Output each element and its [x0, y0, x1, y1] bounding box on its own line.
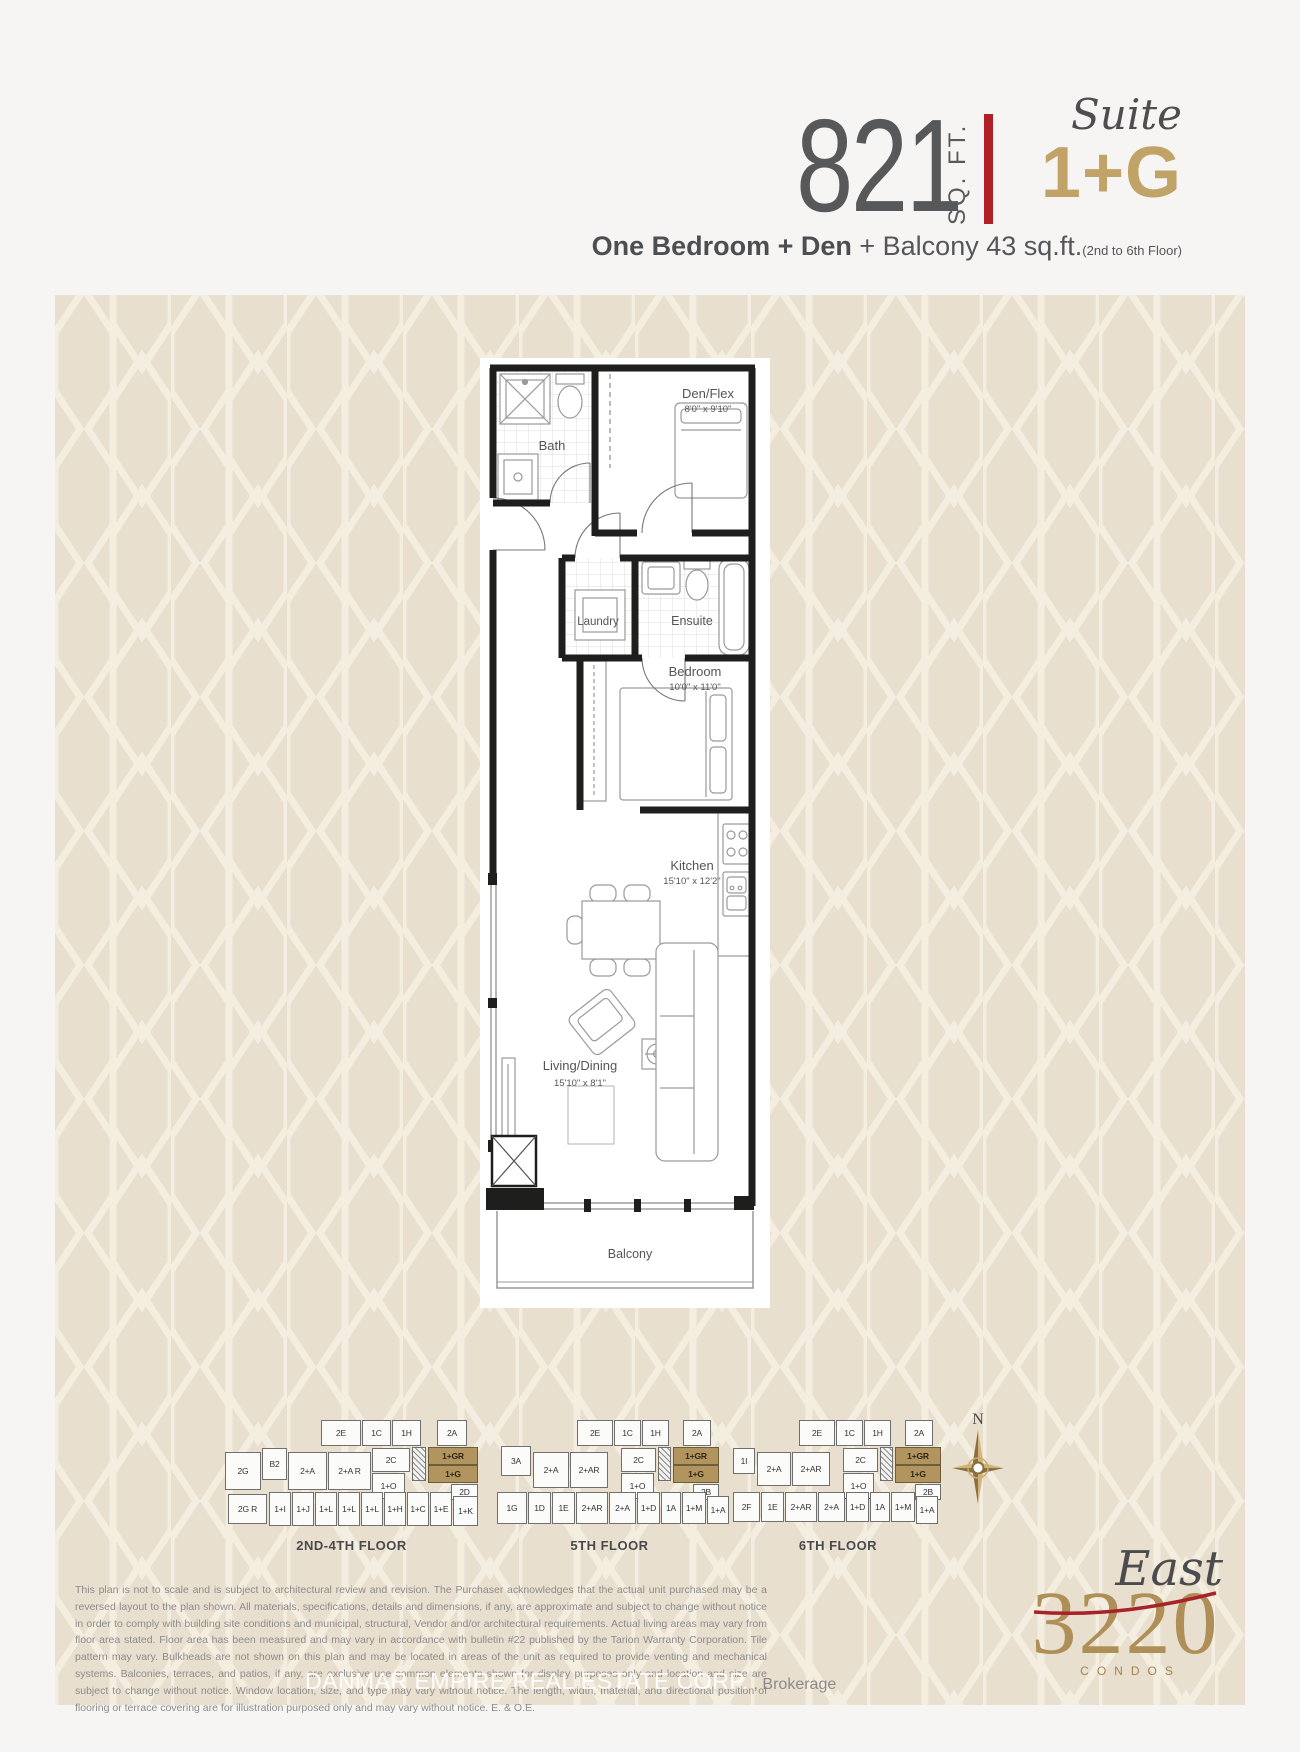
- keyplan-unit: 1C: [836, 1420, 863, 1446]
- compass-north-label: N: [972, 1411, 984, 1428]
- keyplan-unit: 1+G: [428, 1465, 478, 1483]
- room-dims-den: 8'0" x 9'10": [685, 404, 732, 415]
- suite-code: 1+G: [1000, 134, 1182, 213]
- room-label-laundry: Laundry: [577, 616, 619, 628]
- keyplan-unit: 1A: [661, 1492, 681, 1524]
- brokerage-watermark: DANMAR EMPIRE REAL ESTATE CORP. , Broker…: [305, 1668, 836, 1695]
- keyplan-unit: 1H: [642, 1420, 669, 1446]
- keyplan-unit: 1G: [497, 1492, 527, 1524]
- room-label-den: Den/Flex: [682, 386, 735, 401]
- keyplan-caption: 6TH FLOOR: [733, 1538, 943, 1553]
- subtitle-bold: One Bedroom + Den: [592, 231, 852, 261]
- compass-rose: [952, 1430, 1004, 1504]
- keyplan-unit: 1+A: [707, 1496, 729, 1524]
- keyplan-unit: 1+G: [895, 1465, 941, 1483]
- room-label-kitchen: Kitchen: [670, 858, 713, 873]
- shower: [500, 374, 550, 424]
- suite-word: Suite: [1000, 90, 1182, 139]
- room-label-bedroom: Bedroom: [669, 664, 722, 679]
- keyplan-unit: 1+C: [407, 1492, 429, 1526]
- keyplan-unit: 2G: [225, 1452, 261, 1490]
- room-label-ensuite: Ensuite: [671, 614, 713, 628]
- keyplan-unit: 2+AR: [576, 1492, 608, 1524]
- keyplan-unit: 2+A: [818, 1492, 845, 1522]
- keyplan-unit: 1+K: [453, 1496, 478, 1526]
- keyplan-unit: 2+AR: [792, 1452, 830, 1486]
- keyplan-unit: 2E: [799, 1420, 835, 1446]
- bath-vanity: [498, 454, 538, 500]
- keyplan-unit: 2+A: [288, 1452, 327, 1490]
- disclaimer-text: This plan is not to scale and is subject…: [75, 1582, 767, 1716]
- sofa: [656, 943, 718, 1161]
- keyplan-unit: 1+I: [269, 1492, 291, 1526]
- suite-area-unit: SQ. FT.: [944, 117, 972, 225]
- keyplan-unit: 1+H: [384, 1492, 406, 1526]
- kitchen-sink: [723, 872, 750, 916]
- keyplan-unit: 2C: [621, 1448, 656, 1472]
- keyplan-unit: 1+D: [846, 1492, 869, 1522]
- bulkhead: [486, 1188, 544, 1210]
- keyplan-unit: 1H: [864, 1420, 891, 1446]
- room-label-living: Living/Dining: [543, 1058, 617, 1073]
- keyplan-unit: 1+J: [292, 1492, 314, 1526]
- washer: [575, 590, 625, 640]
- keyplan-unit: 2A: [437, 1420, 467, 1446]
- keyplan-unit: 2+A: [757, 1452, 791, 1486]
- keyplan-unit: 2C: [372, 1448, 410, 1472]
- keyplan-unit: 2C: [843, 1448, 878, 1472]
- keyplan-unit: 1+GR: [673, 1447, 719, 1465]
- cooktop: [723, 824, 750, 864]
- keyplan-unit: 1E: [552, 1492, 575, 1524]
- keyplan-unit: 3A: [501, 1446, 531, 1476]
- keyplan-unit: 1H: [392, 1420, 421, 1446]
- shaft: [492, 1136, 536, 1186]
- keyplan-unit: 1+M: [891, 1492, 915, 1522]
- keyplan-unit: 2F: [733, 1492, 760, 1522]
- bedroom-closet: [582, 661, 606, 801]
- bathtub: [719, 559, 749, 655]
- keyplan-unit: 1+GR: [895, 1447, 941, 1465]
- keyplan-caption: 5TH FLOOR: [497, 1538, 722, 1553]
- room-dims-bedroom: 10'0" x 11'0": [669, 682, 720, 693]
- keyplan-6th-floor: 6TH FLOOR 2E1C1H2A2C1+GR1+G2B1I2+A2+AR1+…: [733, 1420, 943, 1532]
- bedroom-bed: [620, 688, 732, 800]
- keyplan-unit: 2+A: [533, 1452, 569, 1488]
- subtitle-regular: + Balcony 43 sq.ft.: [852, 231, 1082, 261]
- room-label-bath: Bath: [539, 438, 566, 453]
- bath-toilet: [556, 374, 584, 418]
- brokerage-suffix: , Brokerage: [754, 1676, 837, 1693]
- keyplan-elevator: [412, 1447, 426, 1481]
- keyplan-unit: 1+L: [338, 1492, 360, 1526]
- keyplan-unit: 2+A: [609, 1492, 636, 1524]
- keyplan-unit: 1I: [733, 1448, 755, 1474]
- keyplan-unit: 1E: [761, 1492, 784, 1522]
- keyplan-unit: 1+L: [361, 1492, 383, 1526]
- keyplan-unit: 1+E: [430, 1492, 452, 1526]
- keyplan-unit: 2E: [321, 1420, 361, 1446]
- keyplan-elevator: [880, 1447, 893, 1481]
- logo-red-swoosh: [1030, 1590, 1220, 1618]
- keyplan-unit: 2+A R: [328, 1452, 371, 1490]
- east-3220-logo: East 3220 CONDOS: [1018, 1548, 1233, 1678]
- keyplan-5th-floor: 5TH FLOOR 2E1C1H2A2C1+GR1+G2B3A2+A2+AR1+…: [497, 1420, 722, 1532]
- keyplan-unit: 2+AR: [785, 1492, 817, 1522]
- keyplan-unit: 2A: [683, 1420, 711, 1446]
- subtitle-note: (2nd to 6th Floor): [1082, 243, 1182, 258]
- keyplan-unit: 1+G: [673, 1465, 719, 1483]
- room-label-balcony: Balcony: [608, 1247, 653, 1261]
- keyplan-unit: B2: [262, 1448, 287, 1480]
- floorplan: Bath Den/Flex 8'0" x 9'10" Laundry Ensui…: [480, 358, 770, 1308]
- keyplan-unit: 1+A: [916, 1496, 938, 1524]
- keyplan-unit: 2+AR: [570, 1452, 608, 1488]
- compass-icon: N: [946, 1408, 1010, 1508]
- keyplan-unit: 1+D: [637, 1492, 660, 1524]
- keyplan-unit: 1C: [614, 1420, 641, 1446]
- room-dims-kitchen: 15'10" x 12'2": [663, 876, 720, 887]
- brokerage-name: DANMAR EMPIRE REAL ESTATE CORP.: [305, 1668, 749, 1694]
- keyplan-unit: 1D: [528, 1492, 551, 1524]
- keyplan-caption: 2ND-4TH FLOOR: [225, 1538, 478, 1553]
- brochure-page: 821 SQ. FT. Suite 1+G One Bedroom + Den …: [0, 0, 1300, 1752]
- ensuite-sink: [642, 562, 680, 594]
- keyplan-unit: 2G R: [228, 1494, 267, 1524]
- keyplan-unit: 1+M: [682, 1492, 706, 1524]
- room-dims-living: 15'10" x 8'1": [554, 1078, 606, 1089]
- keyplan-unit: 2E: [577, 1420, 613, 1446]
- ensuite-toilet: [684, 560, 710, 600]
- keyplan-unit: 1+GR: [428, 1447, 478, 1465]
- keyplan-unit: 1C: [362, 1420, 391, 1446]
- header-divider-bar: [984, 114, 993, 224]
- tv-console: [502, 1058, 515, 1146]
- keyplan-elevator: [658, 1447, 671, 1481]
- keyplan-unit: 1+L: [315, 1492, 337, 1526]
- suite-subtitle: One Bedroom + Den + Balcony 43 sq.ft.(2n…: [300, 231, 1182, 262]
- keyplan-unit: 1A: [870, 1492, 890, 1522]
- keyplan-unit: 2A: [905, 1420, 933, 1446]
- keyplan-2nd-4th-floor: 2ND-4TH FLOOR 2E1C1H2A2C1+GR1+G2D2GB22+A…: [225, 1420, 478, 1532]
- suite-area-value: 821: [796, 100, 961, 232]
